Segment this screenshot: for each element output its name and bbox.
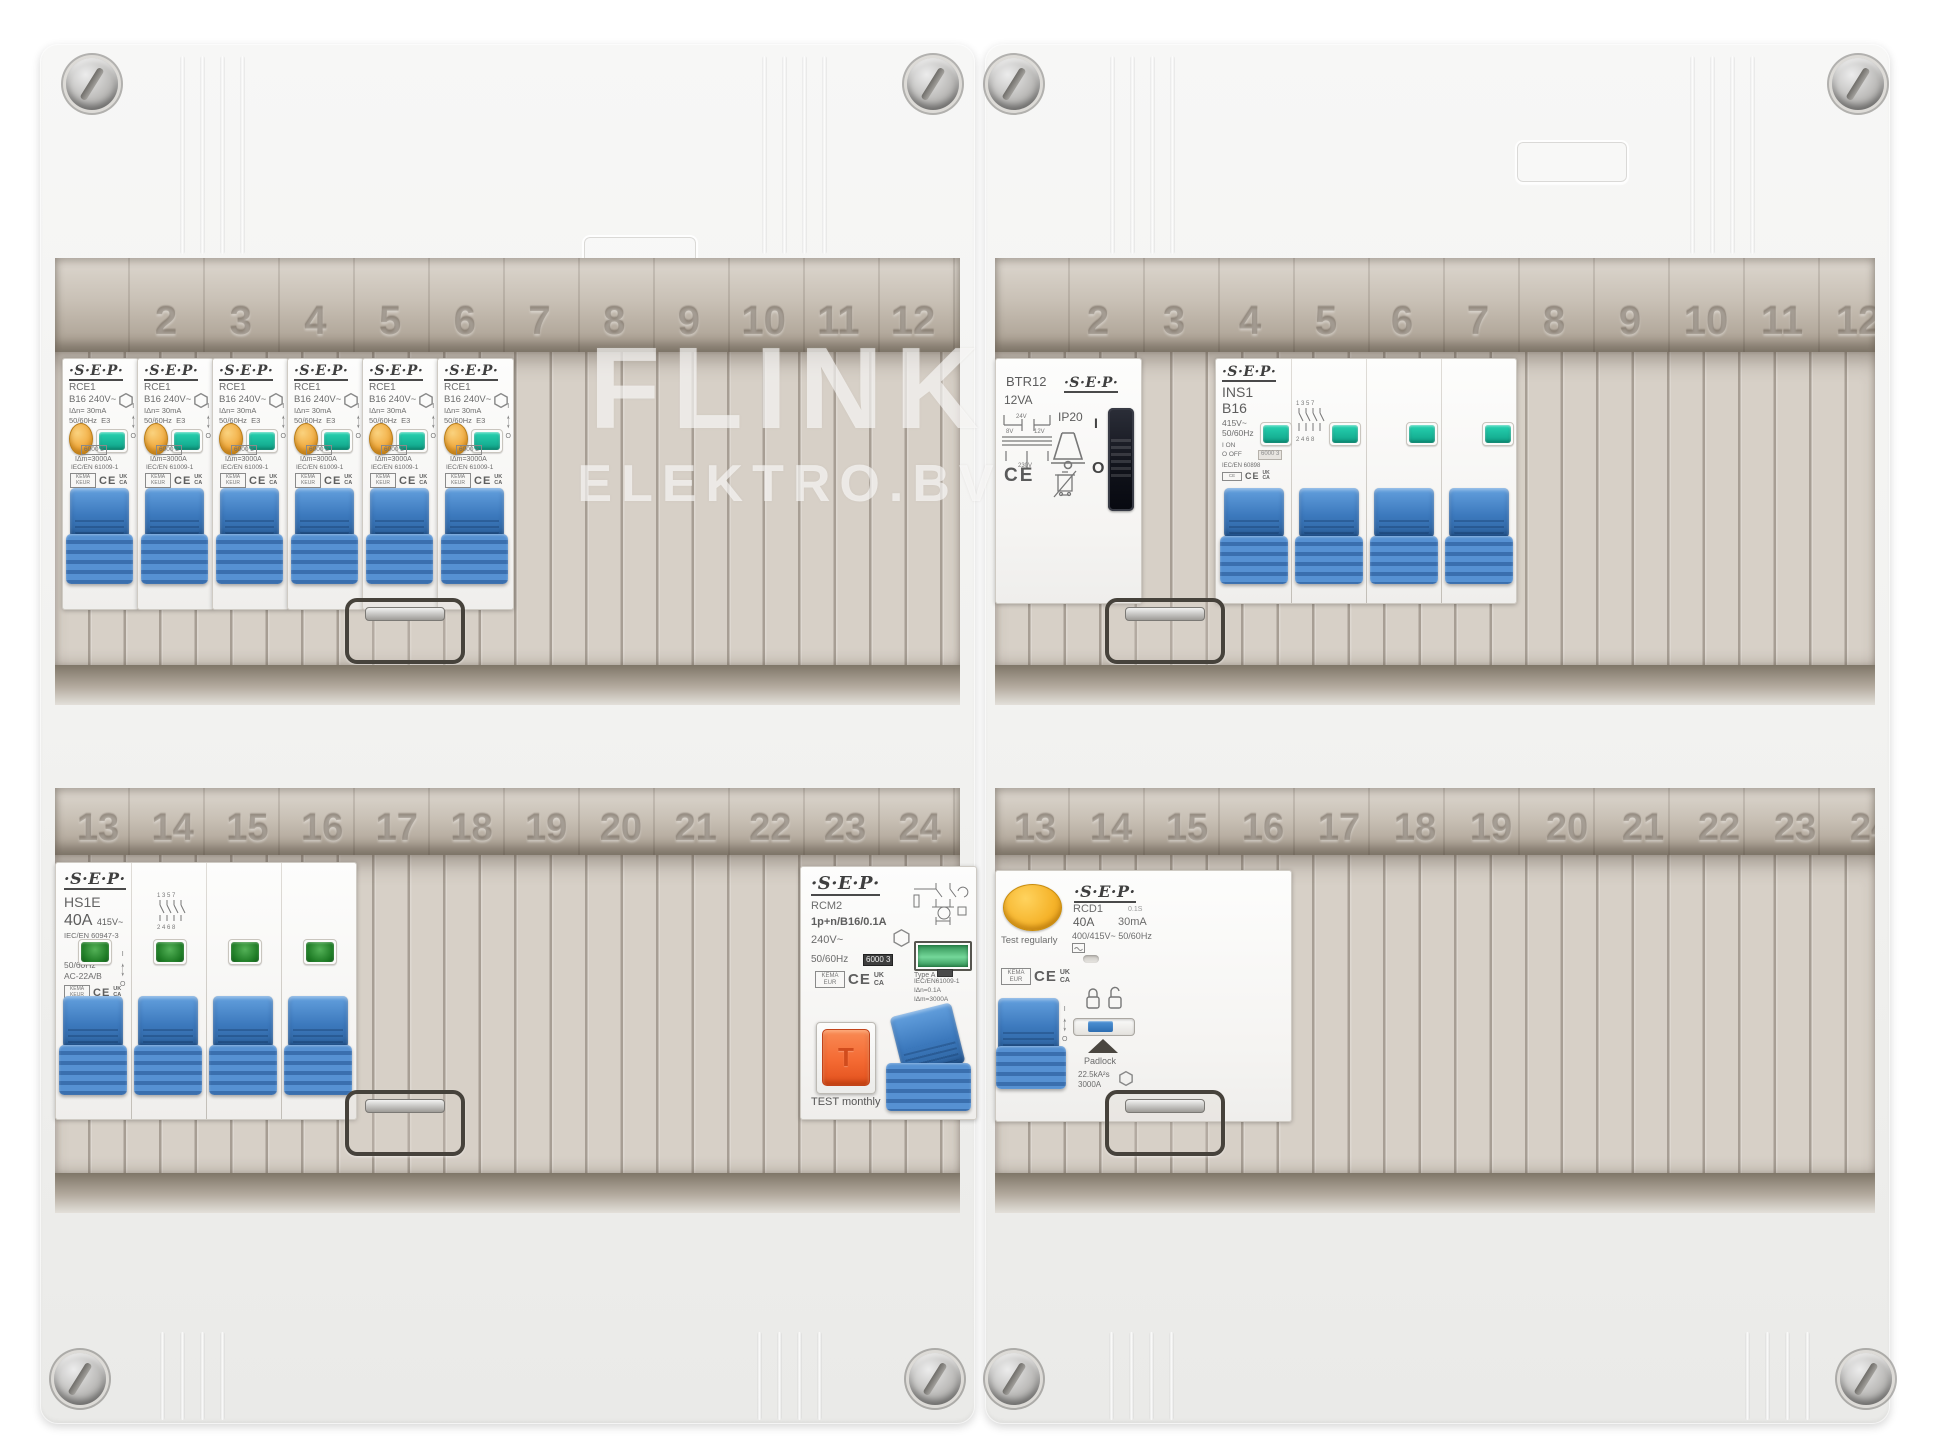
breaker-toggle[interactable]: [213, 996, 273, 1048]
circuit-diagram-icon: [906, 881, 970, 927]
din-rail-row-1: BTR12 ·S·E·P· 12VA 24V 8V 12V 230V IP20 …: [995, 352, 1875, 665]
rail-module-number: 5: [1315, 299, 1337, 344]
model-label: RCE1: [294, 383, 321, 394]
breaker-toggle[interactable]: [445, 488, 504, 538]
ma-label: 30mA: [1118, 917, 1147, 929]
on-off-indicator: I↕O: [506, 403, 511, 440]
breaker-toggle[interactable]: [63, 996, 123, 1048]
amps-label: 40A 415V~: [64, 913, 123, 930]
breaker-toggle[interactable]: [288, 996, 348, 1048]
rail-module-number: 20: [600, 807, 642, 850]
status-window-plate: [78, 939, 112, 965]
rail-module-number: 17: [376, 807, 418, 850]
standard-label: IEC/EN 61009-1: [446, 465, 493, 472]
rating-label: B16 240V~: [369, 395, 416, 405]
breaker-toggle[interactable]: [145, 488, 204, 538]
rail-number-strip-bottom: 131415161718192021222324: [995, 788, 1875, 855]
breaker-toggle[interactable]: [1449, 488, 1509, 538]
certification-marks: KEMA EURCEUKCA: [815, 971, 884, 988]
rail-module-number: 20: [1546, 807, 1588, 850]
svg-text:2 4 6 8: 2 4 6 8: [157, 925, 176, 931]
idn-label: IΔn=0.1A: [914, 988, 941, 995]
rail-module-number: 7: [1467, 299, 1489, 344]
wiring-diagram-icon: 1 3 5 7 2 4 6 8: [156, 891, 186, 931]
window-ledge: [995, 665, 1875, 705]
din-rail-row-2: Test regularly ·S·E·P· RCD1 0.1S 40A 30m…: [995, 855, 1875, 1173]
rail-number-strip-top: 23456789101112: [55, 258, 960, 352]
rail-module-number: 5: [379, 299, 401, 344]
rail-module-number: 13: [1014, 807, 1056, 850]
photo-two-consumer-units: 23456789101112 ·S·E·P· RCE1 B16 240V~ IΔ…: [0, 0, 1937, 1442]
ridge-decoration: [180, 56, 245, 254]
sep-logo: ·S·E·P·: [144, 364, 198, 381]
idm-label: IΔm=3000A: [150, 456, 187, 463]
right-consumer-unit: 23456789101112 BTR12 ·S·E·P· 12VA 24V 8V…: [985, 44, 1890, 1424]
idn-label: IΔn= 30mA: [219, 407, 256, 415]
ip-rating-label: IP20: [1058, 411, 1083, 424]
idn-label: IΔn= 30mA: [444, 407, 481, 415]
model-label: RCE1: [144, 383, 171, 394]
breaker-toggle-foot[interactable]: [1220, 536, 1288, 584]
padlock-label: Padlock: [1084, 1057, 1116, 1066]
sep-logo: ·S·E·P·: [64, 871, 126, 890]
certification-marks: KEMA KEURCEUKCA: [70, 473, 127, 488]
switch-ins1: ·S·E·P· INS1 B16 415V~ 50/60Hz I ON O OF…: [1215, 358, 1517, 604]
test-regularly-label: Test regularly: [1001, 936, 1058, 946]
model-label: INS1: [1222, 385, 1253, 400]
standard-label: IEC/EN61009-1: [914, 979, 960, 986]
left-consumer-unit: 23456789101112 ·S·E·P· RCE1 B16 240V~ IΔ…: [40, 44, 975, 1424]
standard-label: IEC/EN 61009-1: [146, 465, 193, 472]
ridge-decoration: [762, 56, 827, 254]
breaker-toggle[interactable]: [1224, 488, 1284, 538]
on-off-indicator: I↕O: [431, 403, 436, 440]
on-off-indicator: I↕O: [131, 403, 136, 440]
test-button[interactable]: T: [822, 1029, 870, 1086]
padlock-slider-thumb[interactable]: [1088, 1021, 1113, 1032]
sep-logo: ·S·E·P·: [811, 875, 880, 896]
model-label: RCE1: [219, 383, 246, 394]
breaker-toggle[interactable]: [138, 996, 198, 1048]
standard-label: IEC/EN 60898: [1222, 463, 1260, 469]
rail-module-number: 14: [1090, 807, 1132, 850]
standard-label: IEC/EN 61009-1: [221, 465, 268, 472]
breaker-toggle-foot[interactable]: [441, 534, 508, 584]
window-ledge: [995, 1173, 1875, 1213]
ce-mark: CE: [1004, 466, 1034, 486]
rail-module-number: 16: [1242, 807, 1284, 850]
ridge-decoration: [1745, 1332, 1810, 1420]
breaker-toggle-foot[interactable]: [209, 1045, 277, 1095]
idn-label: IΔn= 30mA: [69, 407, 106, 415]
rcbo-rce1-6: ·S·E·P· RCE1 B16 240V~ IΔn= 30mA 50/60Hz…: [437, 358, 514, 610]
sep-logo: ·S·E·P·: [219, 364, 273, 381]
rail-number-strip-top: 23456789101112: [995, 258, 1875, 352]
test-monthly-label: TEST monthly: [811, 1097, 881, 1109]
breaker-toggle[interactable]: [998, 998, 1059, 1051]
model-label: RCE1: [444, 383, 471, 394]
breaker-toggle-foot[interactable]: [141, 534, 208, 584]
test-button-letter: T: [838, 1042, 854, 1073]
rating-label: B16: [1222, 401, 1247, 416]
on-off-indicator: I↕O: [120, 951, 125, 988]
rail-module-number: 21: [1622, 807, 1664, 850]
rail-module-number: 4: [1239, 299, 1261, 344]
on-off-indicator: I↕O: [281, 403, 286, 440]
idm-label: IΔm=3000A: [375, 456, 412, 463]
rail-cover-latch[interactable]: [1105, 598, 1225, 664]
idn-label: IΔn= 30mA: [369, 407, 406, 415]
rail-module-number: 11: [1761, 299, 1803, 344]
rail-module-number: 24: [1850, 807, 1875, 850]
rating-label: B16 240V~: [444, 395, 491, 405]
model-label: RCE1: [369, 383, 396, 394]
weee-bin-icon: [1052, 469, 1078, 499]
rail-module-number: 22: [749, 807, 791, 850]
rcbo-rce1-3: ·S·E·P· RCE1 B16 240V~ IΔn= 30mA 50/60Hz…: [212, 358, 289, 610]
model-label: RCM2: [811, 901, 842, 913]
rcbo-rcm2: ·S·E·P· RCM2 1p+n/B16/0.1A 240V~ 50/60Hz…: [800, 866, 977, 1120]
volts-label: 400/415V~ 50/60Hz: [1072, 932, 1152, 941]
corner-screw: [66, 58, 118, 110]
breaker-toggle[interactable]: [370, 488, 429, 538]
green-status-window: [81, 942, 109, 962]
breaker-toggle-foot[interactable]: [59, 1045, 127, 1095]
status-window-plate: [1482, 422, 1514, 446]
padlock-arrow: [1088, 1039, 1118, 1053]
volts-label: 240V~: [811, 935, 843, 947]
breaker-toggle-foot[interactable]: [1295, 536, 1363, 584]
rail-module-number: 9: [678, 299, 700, 344]
breaker-toggle-foot[interactable]: [1370, 536, 1438, 584]
rail-module-number: 18: [1394, 807, 1436, 850]
wiring-diagram-icon: 1 3 5 7 2 4 6 8: [1295, 399, 1325, 443]
teal-status-window: [1263, 425, 1289, 443]
din-rail-row-1: ·S·E·P· RCE1 B16 240V~ IΔn= 30mA 50/60Hz…: [55, 352, 960, 665]
rail-cover-latch[interactable]: [345, 1090, 465, 1156]
freq-label: 50/60Hz: [811, 955, 848, 966]
on-label: I ON: [1222, 443, 1235, 450]
breaker-toggle-foot[interactable]: [1445, 536, 1513, 584]
breaking-capacity-box: 6000 3: [81, 445, 107, 455]
corner-screw: [1840, 1353, 1892, 1405]
rail-module-number: 2: [1087, 299, 1109, 344]
idn-label: IΔn= 30mA: [144, 407, 181, 415]
breaker-toggle-foot[interactable]: [996, 1046, 1066, 1089]
rail-module-number: 18: [450, 807, 492, 850]
breaking-capacity-box: 6000 3: [231, 445, 257, 455]
rail-module-number: 24: [899, 807, 941, 850]
embossed-brand-logo: [1515, 140, 1629, 184]
rcbo-rce1-4: ·S·E·P· RCE1 B16 240V~ IΔn= 30mA 50/60Hz…: [287, 358, 364, 610]
svg-text:1 3 5 7: 1 3 5 7: [1296, 401, 1315, 407]
status-window-plate: [1329, 422, 1361, 446]
test-button[interactable]: [1003, 884, 1062, 931]
certification-marks: KEMA EURCEUKCA: [1001, 968, 1070, 985]
green-status-window: [156, 942, 184, 962]
ukca-mark: UKCA: [119, 475, 127, 487]
breaker-toggle[interactable]: [1374, 488, 1434, 538]
breaking-capacity-box: 6000 3: [863, 954, 893, 966]
cold-climate-hexagon-icon: [1119, 1071, 1133, 1086]
status-window-plate: [153, 939, 187, 965]
va-label: 12VA: [1004, 394, 1032, 407]
rcbo-rce1-5: ·S·E·P· RCE1 B16 240V~ IΔn= 30mA 50/60Hz…: [362, 358, 439, 610]
rail-cover-latch[interactable]: [345, 598, 465, 664]
corner-screw: [907, 58, 959, 110]
standard-label: IEC/EN 61009-1: [371, 465, 418, 472]
transformer-rocker-switch[interactable]: [1108, 408, 1134, 511]
off-label: O: [1092, 461, 1104, 478]
rating-label: B16 240V~: [294, 395, 341, 405]
utilization-label: AC-22A/B: [64, 972, 102, 981]
idm-label: IΔm=3000A: [300, 456, 337, 463]
rail-module-number: 14: [152, 807, 194, 850]
rail-module-number: 22: [1698, 807, 1740, 850]
rail-module-number: 19: [525, 807, 567, 850]
volts-label: 415V~: [1222, 419, 1247, 428]
rail-module-number: 3: [1163, 299, 1185, 344]
rail-module-number: 15: [226, 807, 268, 850]
padlock-icons: [1084, 985, 1126, 1011]
sep-logo: ·S·E·P·: [1074, 884, 1136, 903]
idn-label: IΔn= 30mA: [294, 407, 331, 415]
certification-marks: KEMA KEURCEUKCA: [145, 473, 202, 488]
teal-status-window: [1332, 425, 1358, 443]
idm-label: IΔm=3000A: [225, 456, 262, 463]
rail-module-number: 23: [1774, 807, 1816, 850]
certification-marks: CECEUKCA: [1222, 471, 1270, 482]
main-switch-hs1e: ·S·E·P· HS1E 40A 415V~ IEC/EN 60947-3 50…: [55, 862, 357, 1120]
breaker-toggle-foot[interactable]: [66, 534, 133, 584]
model-label: HS1E: [64, 895, 101, 910]
breaking-capacity-box: 6000 3: [156, 445, 182, 455]
rail-cover-latch[interactable]: [1105, 1090, 1225, 1156]
rail-module-number: 15: [1166, 807, 1208, 850]
corner-screw: [1832, 58, 1884, 110]
status-window-plate: [228, 939, 262, 965]
on-label: I: [1094, 416, 1098, 431]
breaker-toggle-foot[interactable]: [216, 534, 283, 584]
model-label: RCE1: [69, 383, 96, 394]
breaking-capacity-box: 6000 3: [306, 445, 332, 455]
svg-text:1 3 5 7: 1 3 5 7: [157, 893, 176, 899]
rail-module-number: 8: [1543, 299, 1565, 344]
rcd-rcd1: Test regularly ·S·E·P· RCD1 0.1S 40A 30m…: [995, 870, 1292, 1122]
capacity-box: 6000 3: [1258, 450, 1282, 460]
sep-logo: ·S·E·P·: [369, 364, 423, 381]
rail-module-number: 9: [1619, 299, 1641, 344]
standard-label: IEC/EN 61009-1: [296, 465, 343, 472]
wave-box-icon: [1072, 943, 1085, 953]
breaking-capacity-box: 6000 3: [456, 445, 482, 455]
svg-text:8V: 8V: [1006, 429, 1013, 435]
cold-climate-hexagon-icon: [893, 929, 910, 947]
ridge-decoration: [1109, 1332, 1174, 1420]
freq-label: 50/60Hz: [1222, 429, 1254, 438]
breaker-toggle[interactable]: [295, 488, 354, 538]
teal-status-window: [1409, 425, 1435, 443]
ridge-decoration: [1110, 56, 1175, 254]
certification-marks: KEMA KEURCEUKCA: [445, 473, 502, 488]
rail-module-number: 7: [528, 299, 550, 344]
rail-module-number: 13: [77, 807, 119, 850]
idm-label: IΔm=3000A: [75, 456, 112, 463]
breaker-toggle-foot[interactable]: [134, 1045, 202, 1095]
bell-icon: [1049, 429, 1087, 471]
idm-label: IΔm=3000A: [914, 997, 948, 1004]
on-off-indicator: I↕O: [1062, 1006, 1067, 1043]
svg-text:2 4 6 8: 2 4 6 8: [1296, 437, 1315, 443]
corner-screw: [54, 1353, 106, 1405]
status-window-plate: [1260, 422, 1292, 446]
on-off-indicator: I↕O: [206, 403, 211, 440]
rating-label: B16 240V~: [144, 395, 191, 405]
rcbo-rce1-1: ·S·E·P· RCE1 B16 240V~ IΔn= 30mA 50/60Hz…: [62, 358, 139, 610]
sep-logo: ·S·E·P·: [1064, 376, 1118, 393]
corner-screw: [988, 1353, 1040, 1405]
sep-logo: ·S·E·P·: [444, 364, 498, 381]
idm-label: IΔm=3000A: [450, 456, 487, 463]
rail-module-number: 23: [824, 807, 866, 850]
breaker-toggle[interactable]: [1299, 488, 1359, 538]
breaker-toggle[interactable]: [220, 488, 279, 538]
amp-rating-label: 3000A: [1078, 1081, 1101, 1089]
rail-number-strip-bottom: 131415161718192021222324: [55, 788, 960, 855]
rail-module-number: 8: [603, 299, 625, 344]
rail-module-number: 16: [301, 807, 343, 850]
rcbo-rce1-2: ·S·E·P· RCE1 B16 240V~ IΔn= 30mA 50/60Hz…: [137, 358, 214, 610]
sep-logo: ·S·E·P·: [294, 364, 348, 381]
bell-transformer-btr12: BTR12 ·S·E·P· 12VA 24V 8V 12V 230V IP20 …: [995, 358, 1142, 604]
rail-module-number: 21: [674, 807, 716, 850]
breaker-toggle[interactable]: [70, 488, 129, 538]
rating-label: B16 240V~: [219, 395, 266, 405]
rail-module-number: 6: [1391, 299, 1413, 344]
model-label: RCD1: [1073, 904, 1103, 916]
rail-module-number: 12: [1836, 299, 1875, 344]
green-status-window: [306, 942, 334, 962]
status-window-plate: [303, 939, 337, 965]
indicator-slot: [1083, 955, 1099, 963]
amps-label: 40A: [1073, 916, 1094, 929]
certification-marks: KEMA KEURCEUKCA: [370, 473, 427, 488]
rail-module-number: 10: [1684, 299, 1729, 344]
rail-module-number: 10: [741, 299, 786, 344]
window-ledge: [55, 1173, 960, 1213]
sep-logo: ·S·E·P·: [69, 364, 123, 381]
ridge-decoration: [1690, 56, 1755, 254]
svg-text:24V: 24V: [1016, 414, 1027, 420]
off-label: O OFF: [1222, 452, 1242, 459]
breaker-toggle-foot[interactable]: [291, 534, 358, 584]
rail-module-number: 2: [155, 299, 177, 344]
svg-text:12V: 12V: [1034, 429, 1045, 435]
rail-module-number: 6: [454, 299, 476, 344]
breaker-toggle-foot[interactable]: [366, 534, 433, 584]
breaker-toggle-foot[interactable]: [886, 1063, 971, 1111]
sep-logo: ·S·E·P·: [1222, 365, 1276, 382]
rail-module-number: 4: [304, 299, 326, 344]
status-window-plate: [1406, 422, 1438, 446]
status-display-window: [914, 941, 972, 971]
corner-screw: [988, 58, 1040, 110]
certification-marks: KEMA KEURCEUKCA: [220, 473, 277, 488]
teal-status-window: [1485, 425, 1511, 443]
din-rail-row-2: ·S·E·P· HS1E 40A 415V~ IEC/EN 60947-3 50…: [55, 855, 960, 1173]
rail-module-number: 12: [891, 299, 936, 344]
rail-module-number: 3: [230, 299, 252, 344]
ridge-decoration: [160, 1332, 225, 1420]
rail-module-number: 17: [1318, 807, 1360, 850]
breaking-capacity-box: 6000 3: [381, 445, 407, 455]
green-status-window: [231, 942, 259, 962]
on-off-indicator: I↕O: [356, 403, 361, 440]
certification-marks: KEMA KEURCEUKCA: [295, 473, 352, 488]
rail-module-number: 11: [817, 299, 859, 344]
rail-module-number: 19: [1470, 807, 1512, 850]
rating-label: B16 240V~: [69, 395, 116, 405]
window-ledge: [55, 665, 960, 705]
ridge-decoration: [757, 1332, 822, 1420]
delay-label: 0.1S: [1128, 906, 1142, 913]
model-label: BTR12: [1006, 375, 1046, 389]
corner-screw: [909, 1353, 961, 1405]
ka-rating-label: 22.5kA²s: [1078, 1071, 1110, 1079]
breaker-toggle-foot[interactable]: [284, 1045, 352, 1095]
standard-label: IEC/EN 61009-1: [71, 465, 118, 472]
spec-label: 1p+n/B16/0.1A: [811, 917, 887, 929]
